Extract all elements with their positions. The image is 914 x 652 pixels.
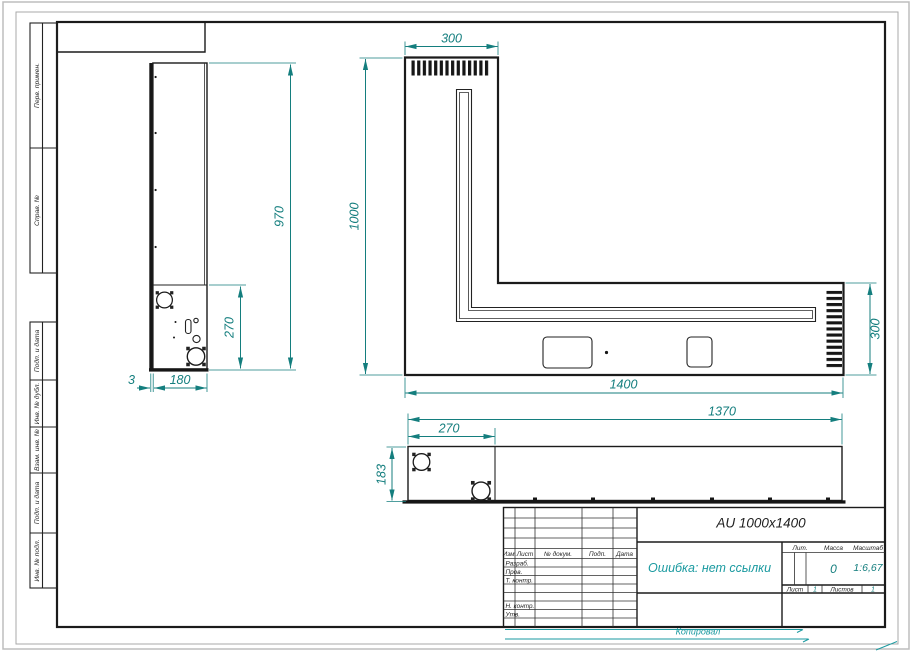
drawing-designation: AU 1000x1400 <box>715 516 806 531</box>
col-izm: Изм. <box>503 551 517 558</box>
dim-plan-right-width: 300 <box>869 319 883 340</box>
drawing-viewer: Перв. примен. Справ. № Подп. и дата Инв.… <box>0 0 914 652</box>
dim-side-depth: 180 <box>170 373 191 387</box>
row-utv: Утв. <box>505 611 521 618</box>
massa-value: 0 <box>830 562 837 576</box>
dim-side-height: 970 <box>273 206 287 227</box>
list-label: Лист <box>786 586 804 593</box>
row-prov: Пров. <box>506 569 523 576</box>
reference-error-note: Ошибка: нет ссылки <box>648 561 771 575</box>
row-razrab: Разраб. <box>506 559 529 567</box>
margin-label-inv-dubl: Инв. № дубл. <box>33 382 41 424</box>
masshtab-label: Масштаб <box>853 544 883 552</box>
col-data: Дата <box>615 551 633 558</box>
margin-label-sprav: Справ. № <box>34 195 41 226</box>
col-doc: № докум. <box>544 550 572 558</box>
col-podp: Подп. <box>589 550 606 558</box>
drawing-sheet: Перв. примен. Справ. № Подп. и дата Инв.… <box>0 0 914 652</box>
col-list: Лист <box>516 551 534 558</box>
massa-label: Масса <box>824 545 843 552</box>
listov-value: 1 <box>871 586 875 593</box>
dim-plan-length: 1400 <box>610 378 638 392</box>
fan-icon <box>471 481 491 501</box>
margin-label-inv-podl: Инв. № подл. <box>33 539 41 581</box>
row-tkontr: Т. контр. <box>506 577 534 584</box>
front-base-edge <box>403 500 846 503</box>
lit-label: Лит. <box>792 545 808 552</box>
margin-label-podp-data-2: Подп. и дата <box>33 482 41 525</box>
fan-icon <box>156 291 174 309</box>
margin-label-podp-data-1: Подп. и дата <box>33 330 41 373</box>
dim-plan-height: 1000 <box>348 203 362 231</box>
dim-plan-top-width: 300 <box>441 32 462 46</box>
listov-label: Листов <box>829 586 854 593</box>
fan-icon <box>186 347 206 367</box>
dim-side-gap: 3 <box>128 373 135 387</box>
fan-icon <box>412 453 431 472</box>
top-vent-grille <box>412 61 491 76</box>
margin-label-vzam-inv: Взам. инв. № <box>34 429 41 471</box>
dim-side-box: 270 <box>223 317 237 339</box>
row-nkontr: Н. контр. <box>506 603 535 610</box>
side-base-edge <box>149 368 209 371</box>
dim-front-section: 270 <box>438 422 460 436</box>
dim-front-length: 1370 <box>708 405 736 419</box>
margin-label-perv-primen: Перв. примен. <box>34 63 41 108</box>
right-vent-grille <box>827 291 843 368</box>
list-value: 1 <box>813 586 817 593</box>
masshtab-value: 1:6,67 <box>853 562 883 574</box>
dim-front-height: 183 <box>375 464 389 485</box>
kopiroval-label: Копировал <box>676 627 721 637</box>
